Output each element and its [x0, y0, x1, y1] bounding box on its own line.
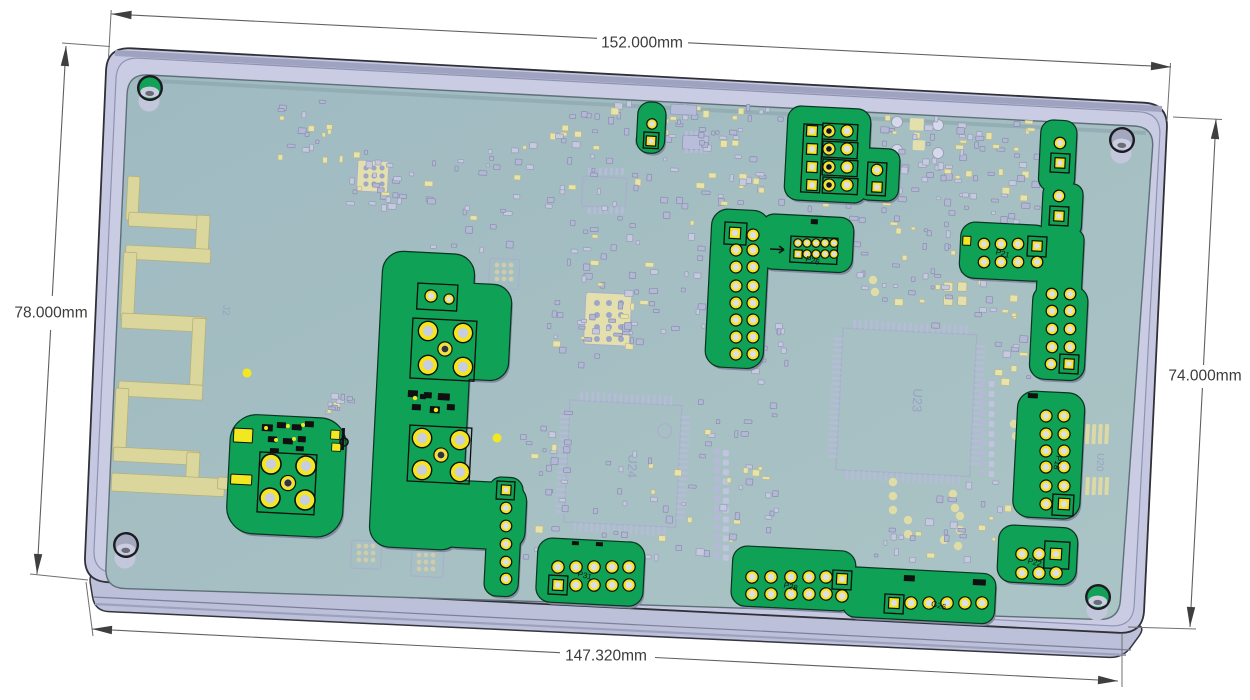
svg-text:U23: U23: [909, 388, 925, 413]
svg-text:U20: U20: [1093, 453, 1105, 472]
svg-text:147.320mm: 147.320mm: [565, 647, 647, 664]
svg-text:U24: U24: [624, 454, 640, 479]
svg-text:78.000mm: 78.000mm: [14, 304, 87, 321]
svg-text:J2: J2: [220, 305, 232, 317]
svg-text:74.000mm: 74.000mm: [1168, 367, 1241, 384]
svg-text:152.000mm: 152.000mm: [601, 34, 683, 51]
